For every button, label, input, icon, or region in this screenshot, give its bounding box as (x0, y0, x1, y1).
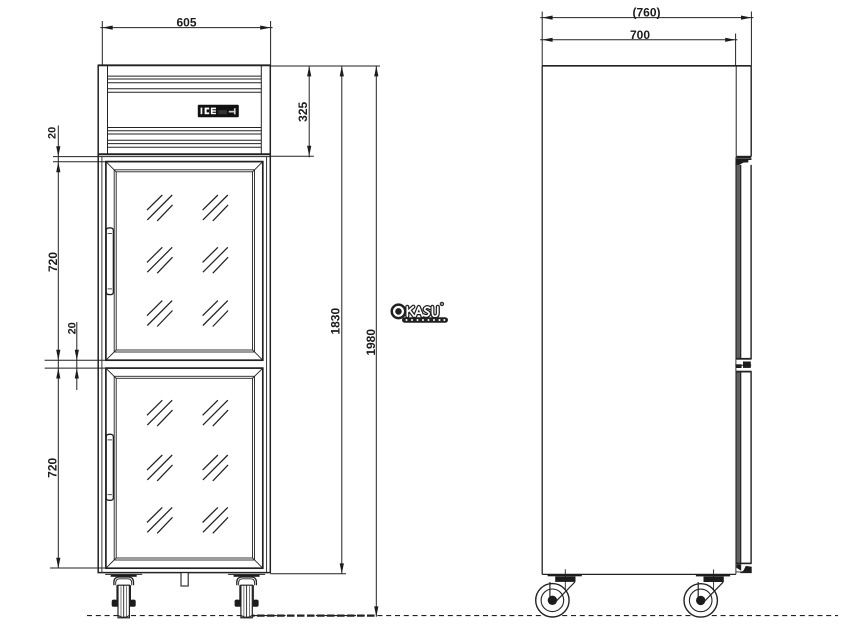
svg-text:605: 605 (176, 16, 196, 30)
svg-text:700: 700 (630, 28, 650, 42)
svg-text:720: 720 (46, 252, 60, 272)
svg-text:1830: 1830 (329, 308, 343, 335)
svg-text:20: 20 (66, 322, 78, 334)
svg-text:(760): (760) (632, 6, 660, 20)
svg-text:720: 720 (45, 457, 59, 477)
svg-text:1980: 1980 (364, 329, 378, 356)
svg-text:325: 325 (296, 101, 310, 121)
svg-text:20: 20 (47, 127, 59, 139)
